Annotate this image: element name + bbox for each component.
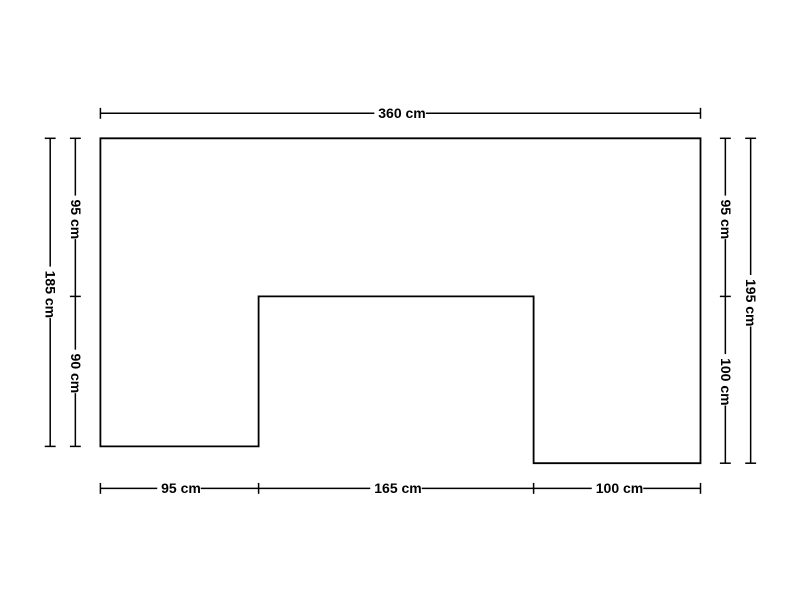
svg-text:360 cm: 360 cm (378, 105, 425, 121)
svg-text:100 cm: 100 cm (596, 480, 643, 496)
svg-text:95 cm: 95 cm (68, 199, 84, 239)
svg-text:100 cm: 100 cm (718, 358, 734, 405)
svg-text:185 cm: 185 cm (43, 271, 59, 318)
svg-text:195 cm: 195 cm (743, 279, 759, 326)
svg-text:165 cm: 165 cm (374, 480, 421, 496)
svg-text:90 cm: 90 cm (68, 354, 84, 394)
svg-text:95 cm: 95 cm (161, 480, 201, 496)
svg-text:95 cm: 95 cm (718, 199, 734, 239)
